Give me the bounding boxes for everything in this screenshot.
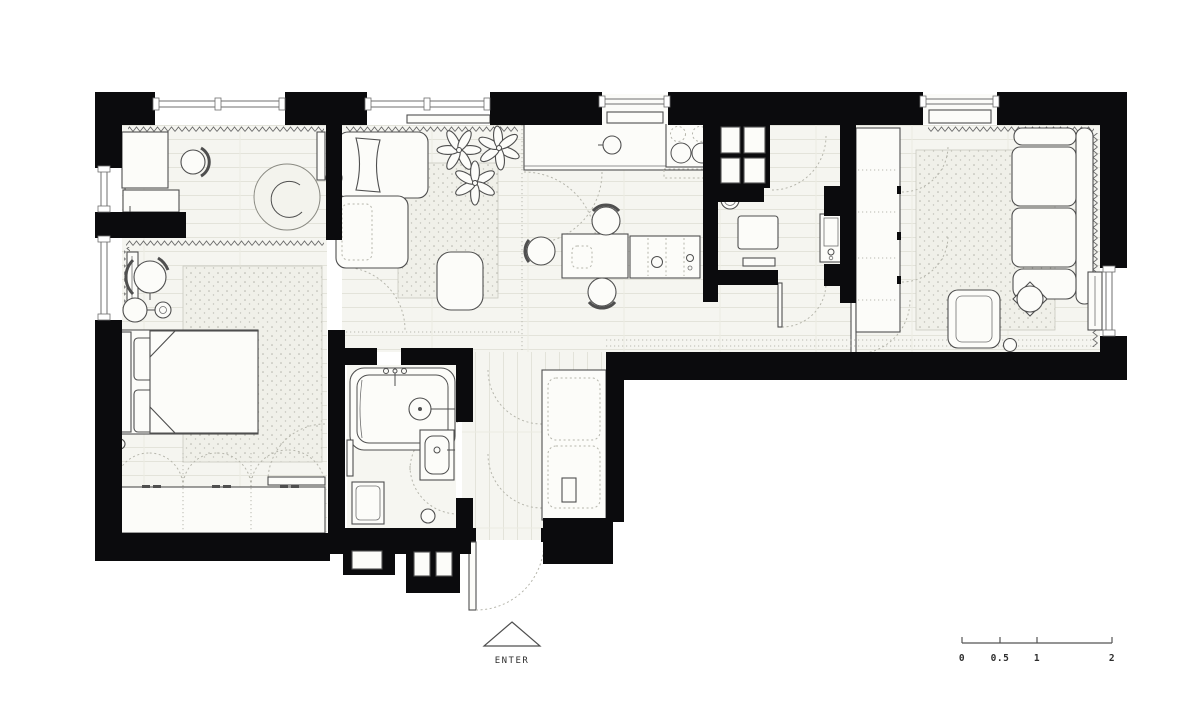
scale-bar: 0 0.5 1 2 (959, 637, 1115, 664)
dining-chair (527, 237, 555, 265)
dining-chair (588, 278, 616, 306)
seat-bench (738, 216, 778, 249)
kitchen-sink (603, 136, 621, 154)
kitchen-island (630, 236, 700, 278)
scale-label-2: 2 (1109, 653, 1115, 664)
entry-marker: ENTER (484, 622, 540, 666)
wardrobe (113, 485, 325, 533)
washbasin (420, 430, 455, 480)
duvet (150, 331, 258, 433)
stool (1004, 339, 1017, 352)
window-shelf (407, 115, 490, 123)
washing-machine (352, 482, 384, 524)
armchair (948, 290, 1000, 348)
entry-door-arc (476, 542, 544, 610)
radiator (317, 132, 325, 180)
scale-label-05: 0.5 (991, 653, 1010, 664)
side-table (155, 302, 171, 318)
radiator (347, 440, 353, 476)
window-lounge-right (1103, 266, 1115, 336)
vanity-stool (123, 298, 147, 322)
lounge-wardrobe (856, 128, 901, 332)
low-bench (743, 258, 775, 266)
office-door-leaf (778, 283, 782, 327)
shoe-box (562, 478, 576, 502)
sofa-cushion (1012, 147, 1076, 206)
lounge-door-leaf (851, 300, 856, 354)
ottoman-pouf (437, 252, 483, 310)
sideboard (123, 190, 179, 212)
dining-chair (592, 207, 620, 235)
sofa-cushion (1012, 208, 1076, 267)
entry-arrow-icon (484, 622, 540, 646)
window-sill (607, 112, 663, 123)
hall-wardrobe (542, 370, 606, 520)
floor-plan-sheet: ENTER 0 0.5 1 2 (0, 0, 1200, 702)
window-kitchen (599, 94, 670, 124)
window-sill (929, 110, 991, 123)
entry-label: ENTER (495, 656, 530, 666)
desk (122, 132, 168, 188)
scale-label-1: 1 (1034, 653, 1040, 664)
window-living-top (365, 98, 490, 110)
window-study-top (153, 98, 285, 110)
chaise (336, 196, 408, 268)
dining-table (562, 234, 628, 278)
desk-chair (181, 150, 205, 174)
window-bedroom-left (98, 236, 110, 320)
double-bed (118, 330, 258, 434)
bedroom-door-leaf (268, 477, 325, 485)
scale-label-0: 0 (959, 653, 965, 664)
floor-drain (421, 509, 435, 523)
window-study-left (98, 166, 110, 212)
window-lounge-top (920, 94, 999, 124)
apartment-floor-plan: ENTER 0 0.5 1 2 (0, 0, 1200, 702)
sofa-armrest (1014, 128, 1076, 145)
sofa (1012, 128, 1093, 304)
round-rug (254, 164, 320, 230)
blanket (356, 138, 380, 192)
vanity-mirror (134, 261, 166, 293)
